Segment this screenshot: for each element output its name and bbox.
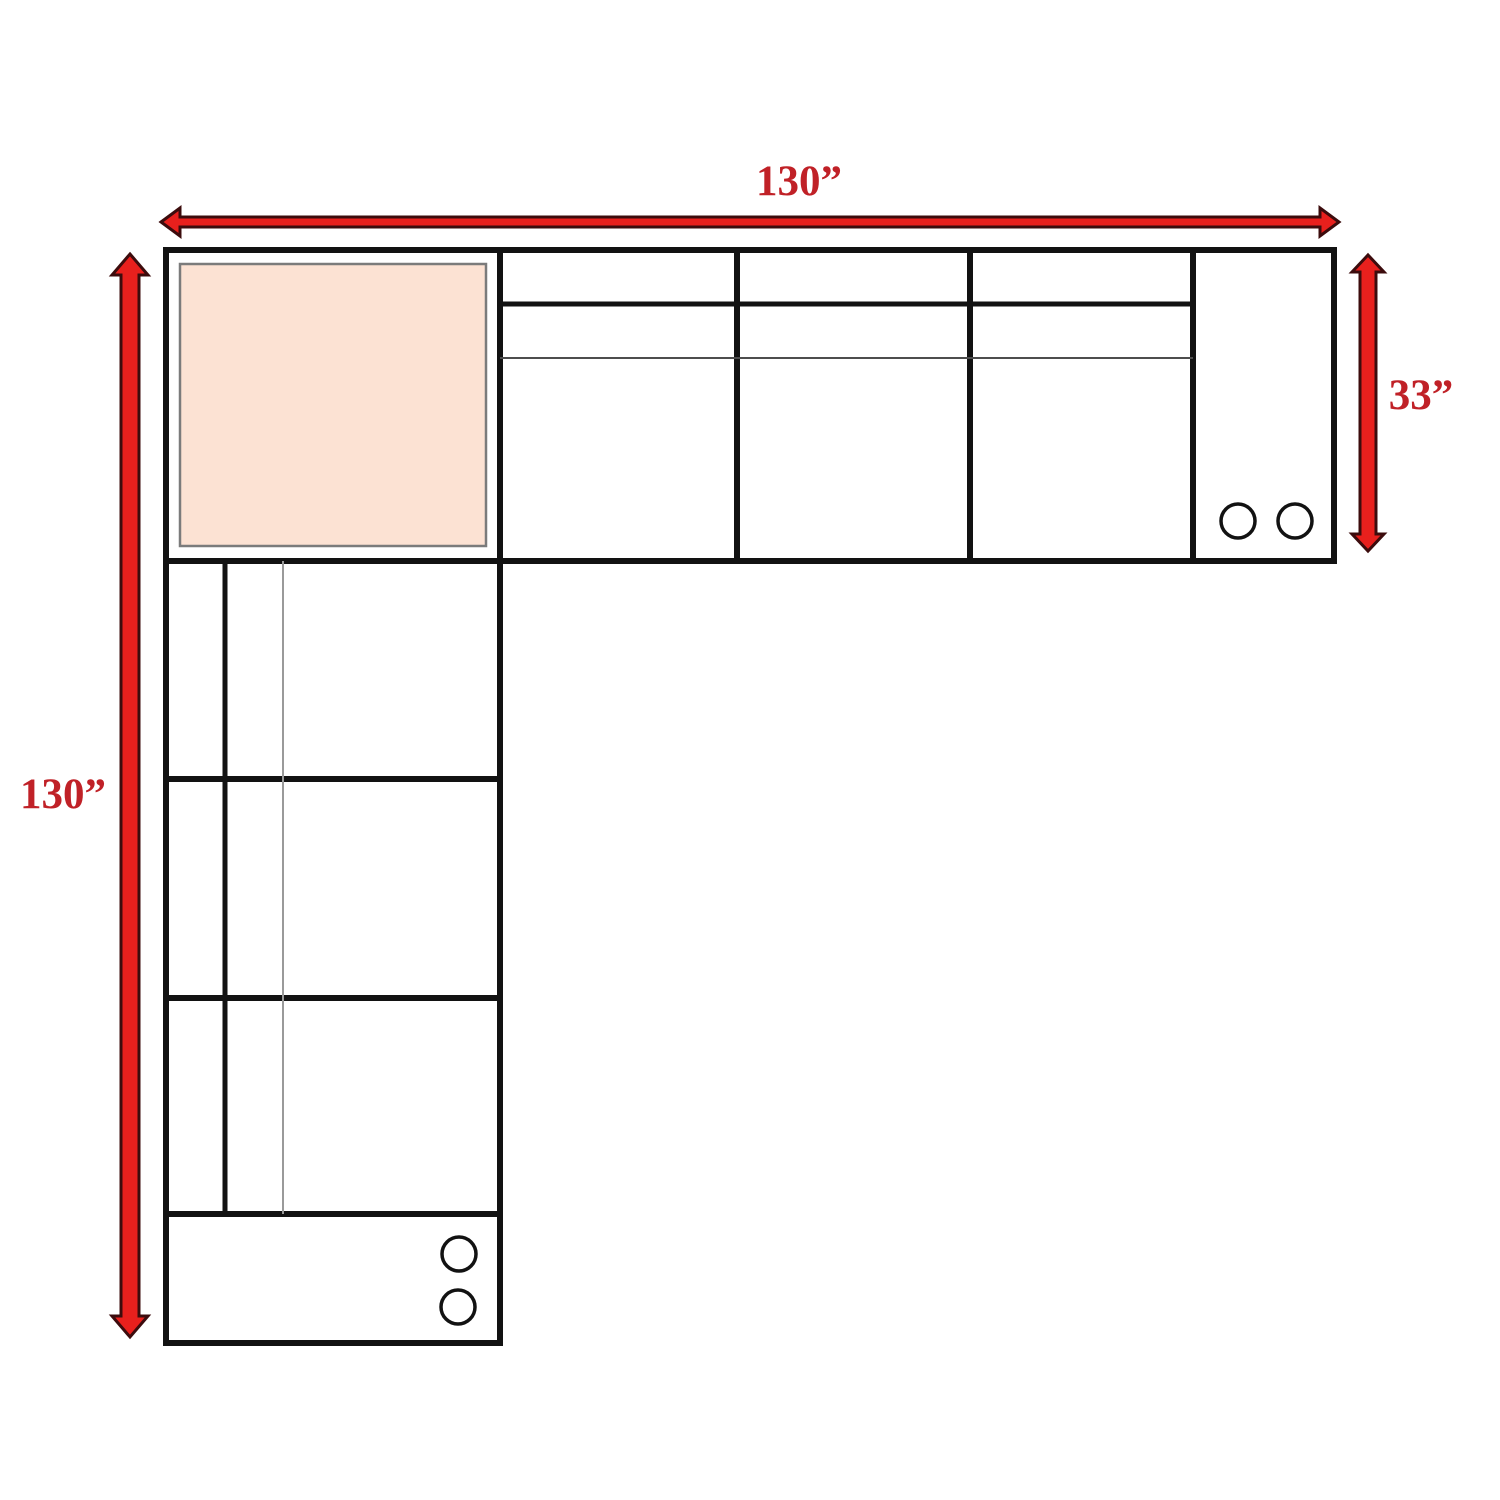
svg-text:130”: 130”: [756, 158, 842, 205]
svg-text:33”: 33”: [1389, 372, 1454, 419]
svg-text:130”: 130”: [20, 771, 106, 818]
